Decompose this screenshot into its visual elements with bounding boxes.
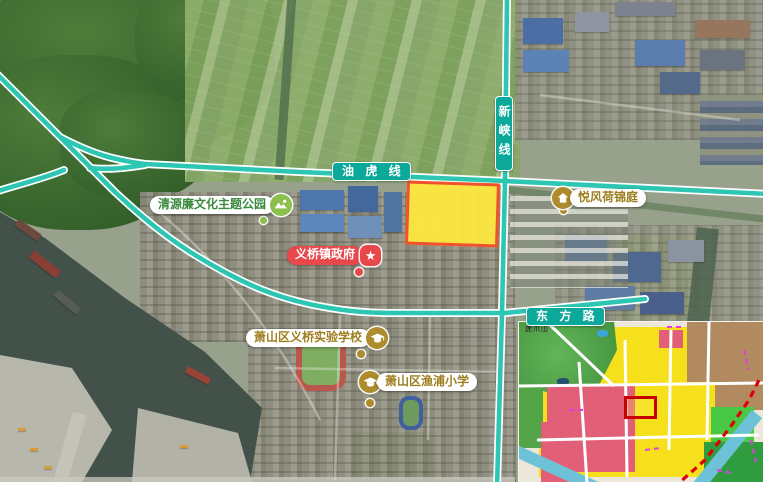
school-track-blue <box>399 396 423 430</box>
factory-building <box>348 186 378 212</box>
crane <box>30 448 38 451</box>
poi-school-experimental-label: 萧山区义桥实验学校 <box>246 329 370 348</box>
road-label-dongfang: 东 方 路 <box>526 307 605 326</box>
road-label-dongfang-text: 东 方 路 <box>536 310 599 322</box>
poi-school-primary-label: 萧山区渔浦小学 <box>377 373 477 392</box>
factory-building <box>635 40 685 66</box>
factory-building <box>384 192 402 232</box>
poi-park-anchor <box>260 217 267 224</box>
crane <box>18 428 26 431</box>
factory-building <box>300 214 344 232</box>
poi-school-experimental[interactable]: 萧山区义桥实验学校 <box>246 327 388 349</box>
highlighted-parcel[interactable] <box>405 181 500 248</box>
road-label-xinxia: 新峡线 <box>495 96 513 171</box>
warehouse-rows <box>700 95 763 165</box>
poi-park-label: 清源廉文化主题公园 <box>150 196 274 215</box>
inset-zoning-map[interactable]: 虎爪山 <box>518 321 763 482</box>
crane <box>180 445 188 448</box>
poi-school-primary[interactable]: 萧山区渔浦小学 <box>359 371 477 393</box>
factory-building <box>640 292 684 314</box>
inset-parcel-highlight[interactable] <box>624 396 657 419</box>
poi-government[interactable]: 义桥镇政府 ★ <box>287 245 381 266</box>
poi-school-primary-anchor <box>366 399 374 407</box>
poi-school-experimental-anchor <box>357 350 365 358</box>
poi-park[interactable]: 清源廉文化主题公园 <box>150 194 292 216</box>
shore-strip <box>0 477 515 482</box>
factory-building <box>523 18 563 44</box>
road-label-youhu: 油 虎 线 <box>332 162 411 181</box>
apartment-rows <box>510 196 628 288</box>
factory-building <box>695 20 750 38</box>
road-label-youhu-text: 油 虎 线 <box>342 165 405 177</box>
park-icon <box>270 194 292 216</box>
factory-building <box>348 216 382 238</box>
star-glyph: ★ <box>365 249 377 262</box>
factory-building <box>700 50 745 70</box>
graduation-cap-icon <box>366 327 388 349</box>
road-label-xinxia-text: 新峡线 <box>498 105 510 162</box>
crane <box>44 466 52 469</box>
factory-building <box>615 2 675 16</box>
poi-government-anchor <box>355 268 363 276</box>
factory-building <box>575 12 609 32</box>
poi-estate-label: 悦风荷锦庭 <box>570 189 646 208</box>
factory-building <box>523 50 569 72</box>
factory-building <box>660 72 700 94</box>
factory-building <box>300 190 344 210</box>
factory-building <box>668 240 704 262</box>
star-icon: ★ <box>360 245 381 266</box>
poi-estate[interactable]: 悦风荷锦庭 <box>552 187 646 209</box>
poi-government-label: 义桥镇政府 <box>287 246 363 265</box>
satellite-map[interactable]: 油 虎 线 新峡线 东 方 路 清源廉文化主题公园 悦风荷锦庭 义桥镇政府 ★ … <box>0 0 763 482</box>
